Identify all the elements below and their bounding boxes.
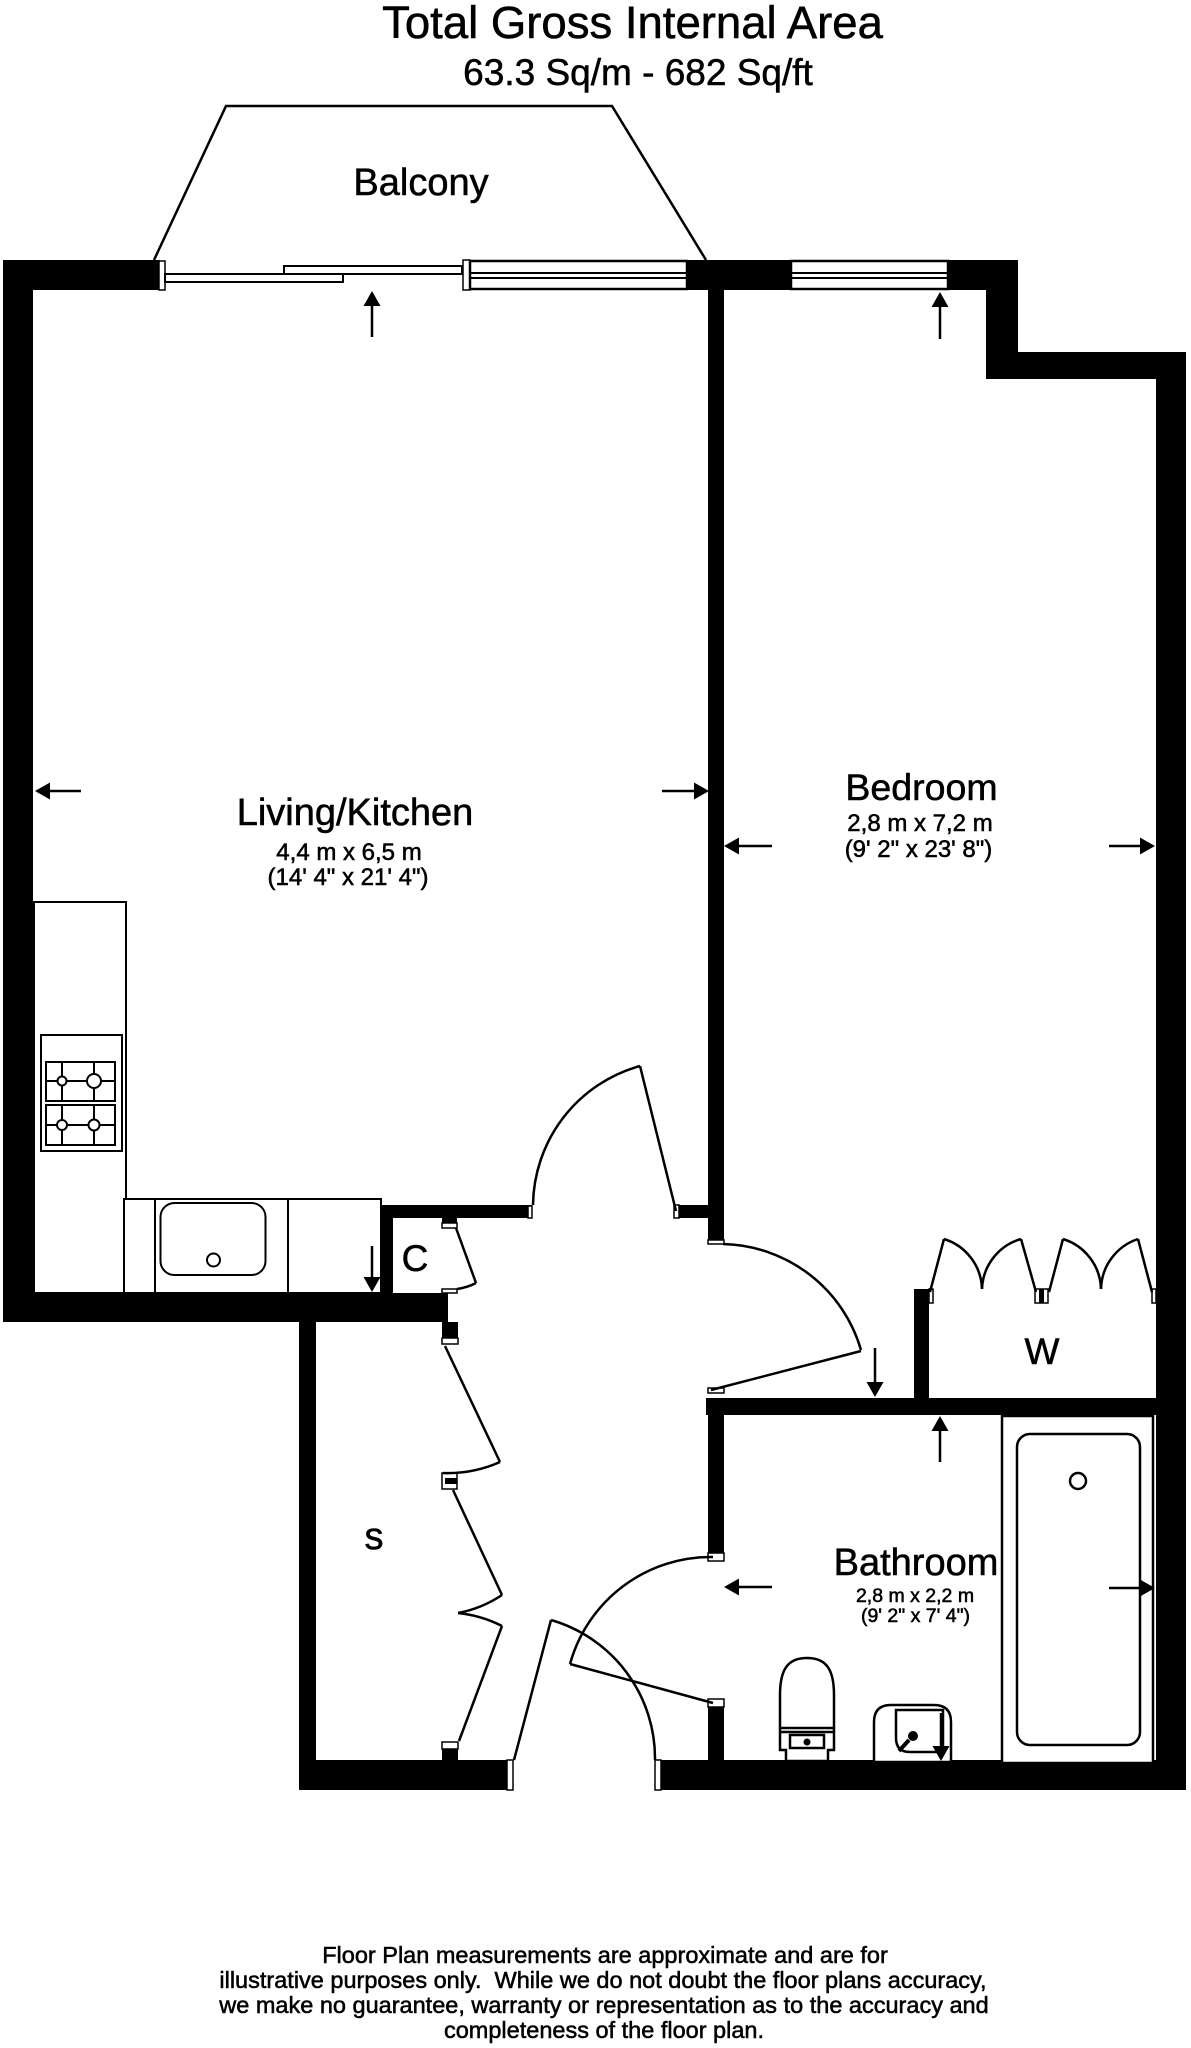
svg-text:illustrative purposes only. W: illustrative purposes only. While we do … [219, 1967, 986, 1993]
svg-text:(9' 2" x 7' 4"): (9' 2" x 7' 4") [861, 1605, 970, 1627]
svg-text:Bathroom: Bathroom [834, 1542, 999, 1584]
svg-text:(9' 2" x 23' 8"): (9' 2" x 23' 8") [845, 836, 993, 863]
svg-text:Total Gross Internal Area: Total Gross Internal Area [382, 0, 883, 48]
svg-text:W: W [1025, 1331, 1060, 1372]
svg-text:Bedroom: Bedroom [845, 766, 997, 808]
svg-text:4,4 m x 6,5 m: 4,4 m x 6,5 m [276, 839, 421, 866]
svg-text:Living/Kitchen: Living/Kitchen [237, 792, 474, 834]
svg-text:s: s [365, 1516, 384, 1558]
svg-text:2,8 m x 7,2 m: 2,8 m x 7,2 m [847, 810, 992, 837]
svg-text:63.3 Sq/m - 682 Sq/ft: 63.3 Sq/m - 682 Sq/ft [463, 52, 813, 93]
svg-text:Balcony: Balcony [353, 162, 488, 204]
svg-text:C: C [402, 1238, 429, 1279]
svg-text:Floor Plan measurements are ap: Floor Plan measurements are approximate … [322, 1942, 888, 1968]
svg-text:completeness of the floor plan: completeness of the floor plan. [444, 2017, 764, 2043]
svg-text:(14' 4" x 21' 4"): (14' 4" x 21' 4") [268, 864, 429, 891]
svg-text:we make no guarantee, warranty: we make no guarantee, warranty or repres… [218, 1992, 988, 2018]
svg-text:2,8 m x 2,2 m: 2,8 m x 2,2 m [856, 1585, 974, 1607]
